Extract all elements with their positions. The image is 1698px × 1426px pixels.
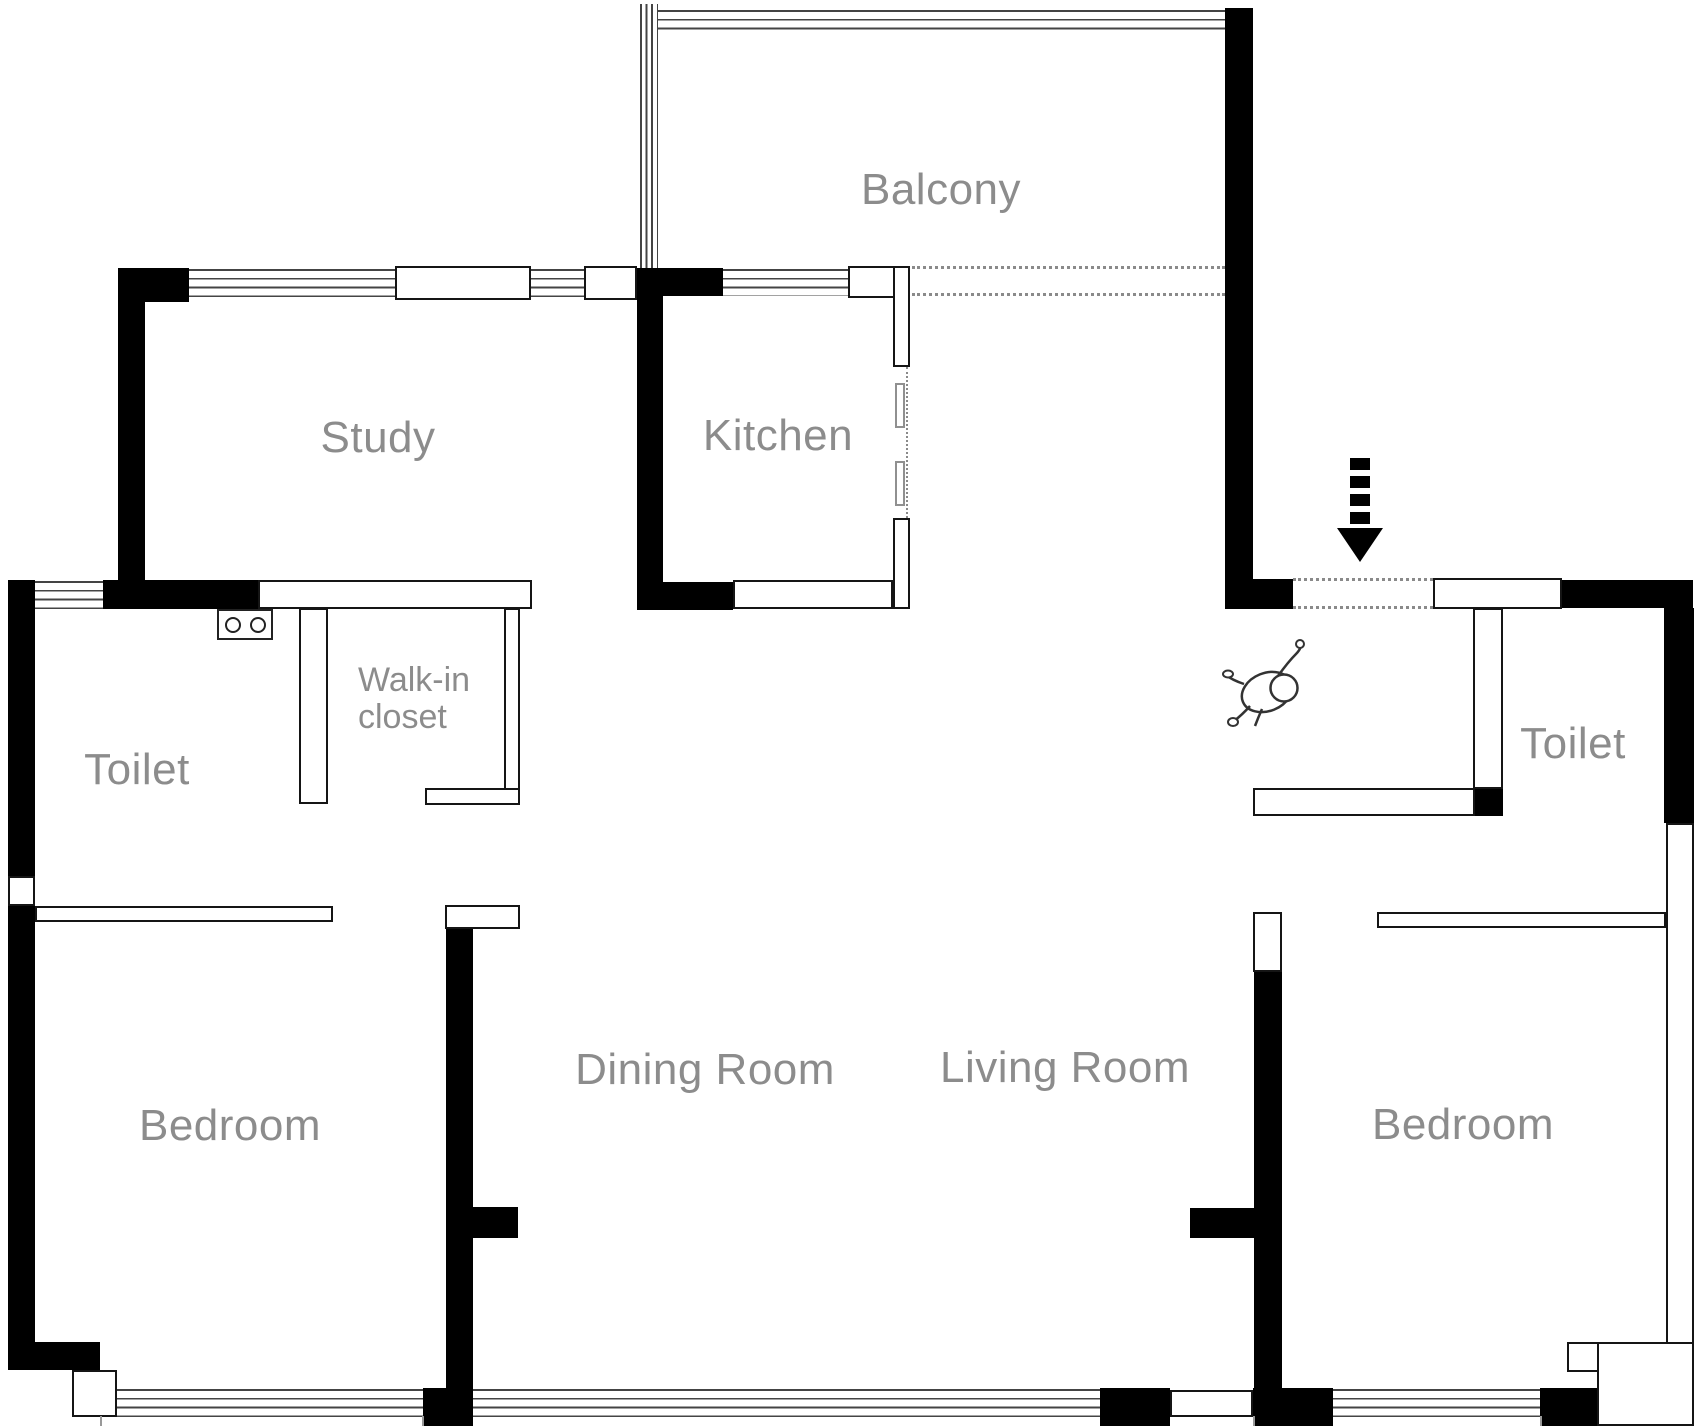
kitchen-top-window — [723, 269, 848, 296]
dimension-tick — [100, 1416, 102, 1426]
kitchen-sliding-door-panel-2 — [895, 461, 905, 506]
kitchen-sliding-door-track — [906, 367, 908, 518]
entrance-opening-dotted-1 — [1293, 578, 1433, 581]
wall-toilet-right-foot — [1473, 788, 1503, 816]
sink-basin-right — [250, 617, 266, 633]
wall-se-corner-step — [1567, 1342, 1599, 1372]
balcony-living-boundary-dotted-1 — [912, 266, 1225, 269]
wall-west-outer-lower — [8, 906, 35, 1342]
wall-study-bay — [395, 266, 531, 300]
wall-southeast-bottom-block — [1540, 1388, 1597, 1426]
wall-balcony-right — [1225, 8, 1253, 609]
wall-bedroom-left-partition — [446, 928, 473, 1388]
room-label-bedroom-right: Bedroom — [1372, 1100, 1554, 1150]
balcony-left-window — [640, 4, 658, 270]
study-window-1 — [189, 269, 395, 298]
bottom-window-middle — [473, 1389, 1100, 1417]
wall-kitchen-bottom-black — [637, 582, 733, 610]
wall-kitchen-left — [637, 268, 663, 610]
wall-bedroom-right-cap — [1253, 912, 1282, 972]
room-label-toilet-right: Toilet — [1520, 719, 1626, 769]
wall-southwest-corner — [8, 1342, 100, 1370]
wall-bedroom-right-stub — [1190, 1208, 1254, 1238]
balcony-living-boundary-dotted-2 — [912, 293, 1225, 296]
wall-study-top-end — [584, 266, 637, 300]
wall-toilet-right-partition — [1473, 608, 1503, 789]
study-window-2 — [531, 269, 584, 298]
wall-se-corner-block — [1597, 1342, 1694, 1426]
dimension-tick — [422, 1416, 424, 1426]
wall-living-bottom-white — [1170, 1390, 1253, 1417]
wall-entrance-foot — [1253, 579, 1293, 609]
room-label-kitchen: Kitchen — [703, 411, 853, 461]
wall-east-outer-white — [1666, 823, 1694, 1363]
room-label-balcony: Balcony — [861, 165, 1021, 215]
balcony-top-window — [657, 10, 1225, 31]
bottom-window-left — [117, 1389, 423, 1417]
room-label-dining-room: Dining Room — [575, 1045, 835, 1095]
wall-closet-right-partition — [504, 608, 520, 790]
wall-northeast-top — [1562, 580, 1693, 608]
wall-bedroom-left-stub — [473, 1207, 518, 1238]
wall-west-gap — [8, 876, 35, 906]
walk-in-closet-line1: Walk-in — [358, 662, 470, 699]
wall-east-outer-black — [1664, 608, 1694, 823]
wall-bedroom-right-bottom-block — [1253, 1388, 1333, 1426]
bottom-window-right — [1333, 1389, 1540, 1417]
wall-hall-bottom — [1253, 788, 1475, 816]
wall-northeast-top-white — [1433, 578, 1562, 609]
sink-basin-left — [225, 617, 241, 633]
wall-bedroom-left-cap — [445, 905, 520, 929]
wall-study-left — [118, 268, 145, 583]
entrance-opening-dotted-2 — [1293, 606, 1433, 609]
dimension-tick — [1253, 1416, 1255, 1426]
wall-kitchen-right-upper — [893, 266, 910, 367]
room-label-toilet-left: Toilet — [84, 745, 190, 795]
wall-closet-left-partition — [299, 608, 328, 804]
wall-kitchen-bottom-white — [733, 580, 893, 609]
wall-closet-top — [258, 580, 532, 609]
wall-kitchen-top-block — [637, 268, 723, 296]
person-figure-icon — [1222, 638, 1322, 730]
dimension-tick — [1540, 1416, 1542, 1426]
wall-bedroom-right-partition — [1254, 970, 1282, 1388]
room-label-study: Study — [320, 413, 435, 463]
walk-in-closet-line2: closet — [358, 699, 470, 736]
wall-bedroom-right-top — [1377, 912, 1666, 928]
wall-sw-step — [72, 1370, 117, 1417]
wall-closet-foot — [425, 788, 520, 805]
room-label-walk-in-closet: Walk-in closet — [358, 662, 470, 736]
wall-toilet-bedroom-partition — [35, 906, 333, 922]
wall-living-bottom-block — [1100, 1388, 1170, 1426]
floor-plan: Balcony Study Kitchen Toilet Walk-in clo… — [0, 0, 1698, 1426]
wall-toilet-left-top-band — [103, 580, 258, 609]
wall-west-outer-upper — [8, 580, 35, 876]
toilet-left-window — [35, 581, 103, 609]
wall-bedroom-left-bottom-block — [423, 1388, 473, 1426]
room-label-living-room: Living Room — [940, 1043, 1190, 1093]
wall-kitchen-right-lower — [893, 518, 910, 609]
kitchen-sliding-door-panel-1 — [895, 383, 905, 428]
sink-icon — [217, 609, 273, 640]
room-label-bedroom-left: Bedroom — [139, 1101, 321, 1151]
